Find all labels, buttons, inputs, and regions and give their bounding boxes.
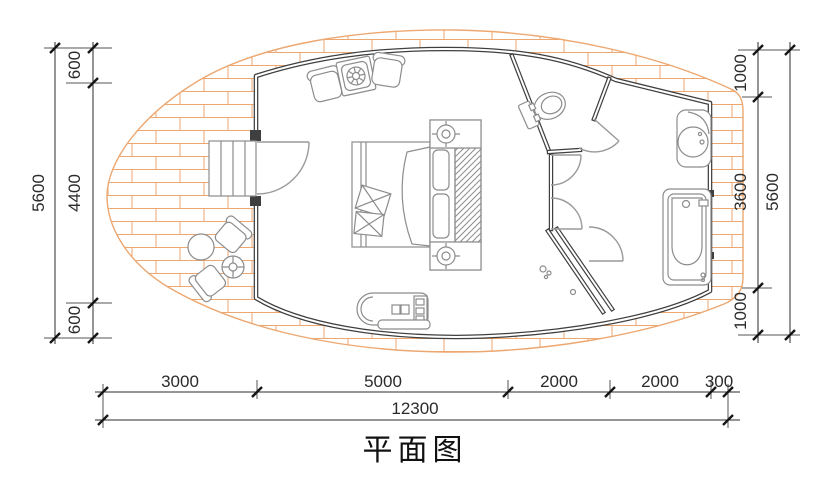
- headboard-pillow-2: [433, 194, 449, 238]
- dim-label: 2000: [540, 372, 578, 391]
- nightstand-lamp-top: [430, 120, 481, 148]
- nightstand-lamp-bottom: [430, 242, 481, 270]
- floor-plan-drawing: 600 4400 600 5600 1000 3600 1000 5600: [0, 0, 837, 496]
- patio-round-table: [188, 234, 214, 260]
- dim-label-total: 12300: [391, 399, 438, 418]
- dim-label: 4400: [65, 174, 84, 212]
- lounge-side-table: [336, 56, 376, 96]
- dim-label: 2000: [641, 372, 679, 391]
- dim-label: 1000: [731, 54, 750, 92]
- dim-right: 1000 3600 1000 5600: [731, 42, 800, 343]
- decor-pillow-2: [354, 212, 384, 237]
- dim-label: 5000: [364, 372, 402, 391]
- washbasin: [677, 110, 711, 167]
- dim-label: 3600: [731, 173, 750, 211]
- patio-coffee-table: [222, 256, 244, 278]
- bathtub: [663, 189, 711, 285]
- dim-label: 5600: [763, 173, 782, 211]
- entry-steps: [209, 141, 256, 196]
- double-bed: [352, 142, 430, 247]
- dim-left: 600 4400 600 5600: [29, 42, 112, 344]
- dim-label: 600: [65, 51, 84, 79]
- wardrobe-hatch: [455, 148, 481, 242]
- dim-label: 3000: [161, 372, 199, 391]
- headboard-pillow-1: [433, 150, 449, 190]
- dim-label: 600: [65, 306, 84, 334]
- dim-label: 1000: [731, 292, 750, 330]
- drawing-title: 平面图: [363, 434, 468, 467]
- floor-plan-canvas: 600 4400 600 5600 1000 3600 1000 5600: [0, 0, 837, 496]
- dim-label: 300: [705, 372, 733, 391]
- dim-label: 5600: [29, 174, 48, 212]
- dim-bottom: 3000 5000 2000 2000 300 12300: [95, 372, 740, 428]
- media-counter: [357, 293, 430, 329]
